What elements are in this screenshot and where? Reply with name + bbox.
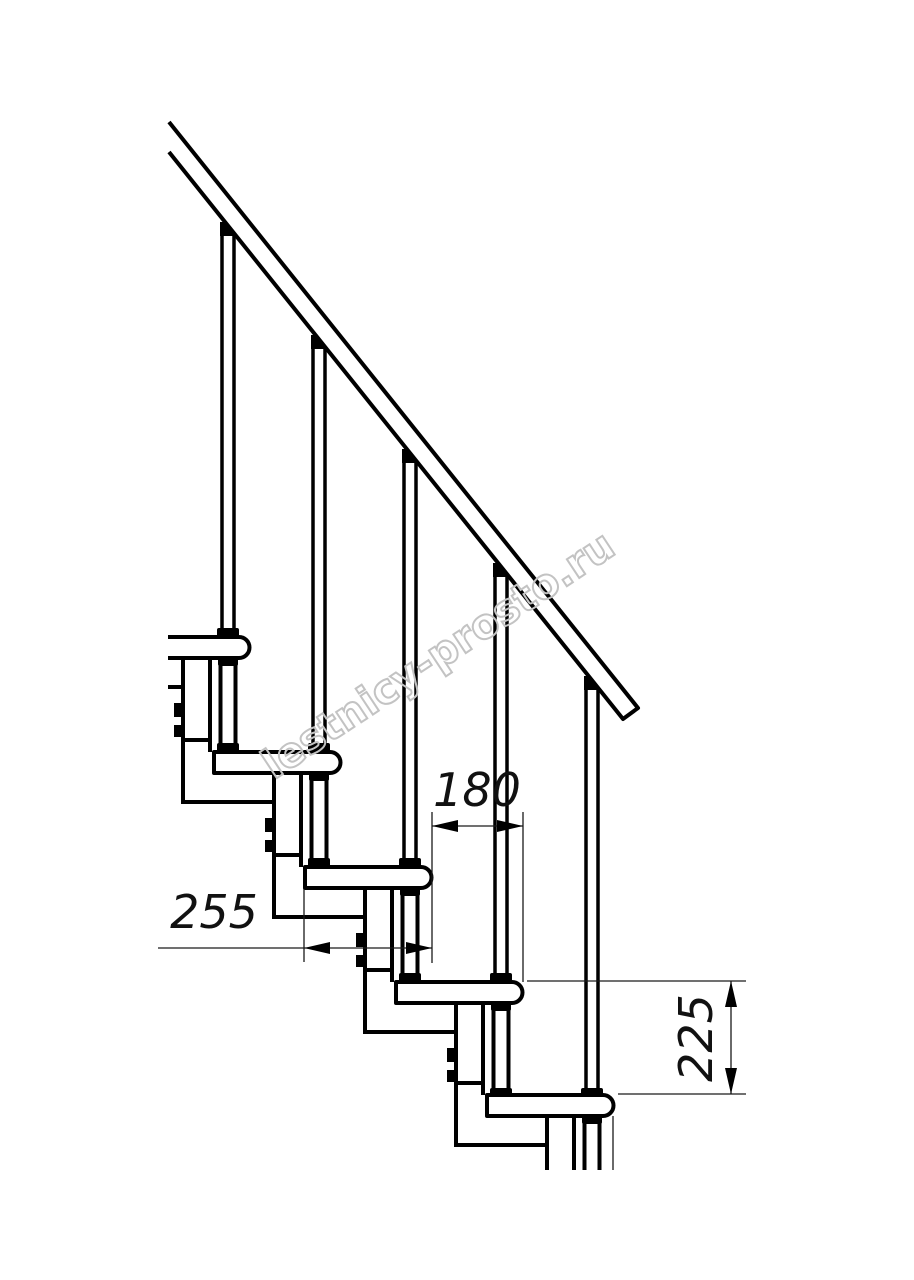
bolt-tab [447,1070,456,1082]
watermark-text: lestnicy-prosto.ru [253,521,623,788]
tread-post-2 [312,773,327,867]
bolt-tab [447,1048,456,1062]
tread-post-1 [221,658,236,752]
bolt-tab [265,818,274,832]
going-dimension-label: 180 [433,763,521,817]
baluster-5 [584,676,600,1095]
tread-post-5 [585,1116,600,1170]
dimension-going-180: 180 [432,763,523,982]
drawing-page: 180 255 225 lestnicy-prosto.ru [0,0,914,1280]
rise-dimension-label: 225 [669,994,723,1082]
bolt-tab [174,703,183,717]
dimension-rise-225: 225 [527,981,746,1094]
support-module-5 [547,1116,613,1170]
tread-3 [305,867,432,888]
tread-5 [487,1095,614,1116]
tread-post-4 [494,1003,509,1095]
stair-drawing: 180 255 225 lestnicy-prosto.ru [0,0,914,1280]
tread-post-3 [403,888,418,982]
depth-dimension-label: 255 [170,885,258,939]
tread-1 [168,637,250,658]
bolt-tab [265,840,274,852]
bolt-tab [356,955,365,967]
bolt-tab [174,725,183,737]
support-module-3 [356,888,454,1032]
tread-4 [396,982,523,1003]
watermark: lestnicy-prosto.ru [253,521,623,788]
baluster-2 [311,335,327,752]
baluster-1 [220,222,236,637]
support-module-4 [447,1003,545,1145]
support-module-1 [174,658,272,802]
bolt-tab [356,933,365,947]
support-module-2 [265,773,363,917]
